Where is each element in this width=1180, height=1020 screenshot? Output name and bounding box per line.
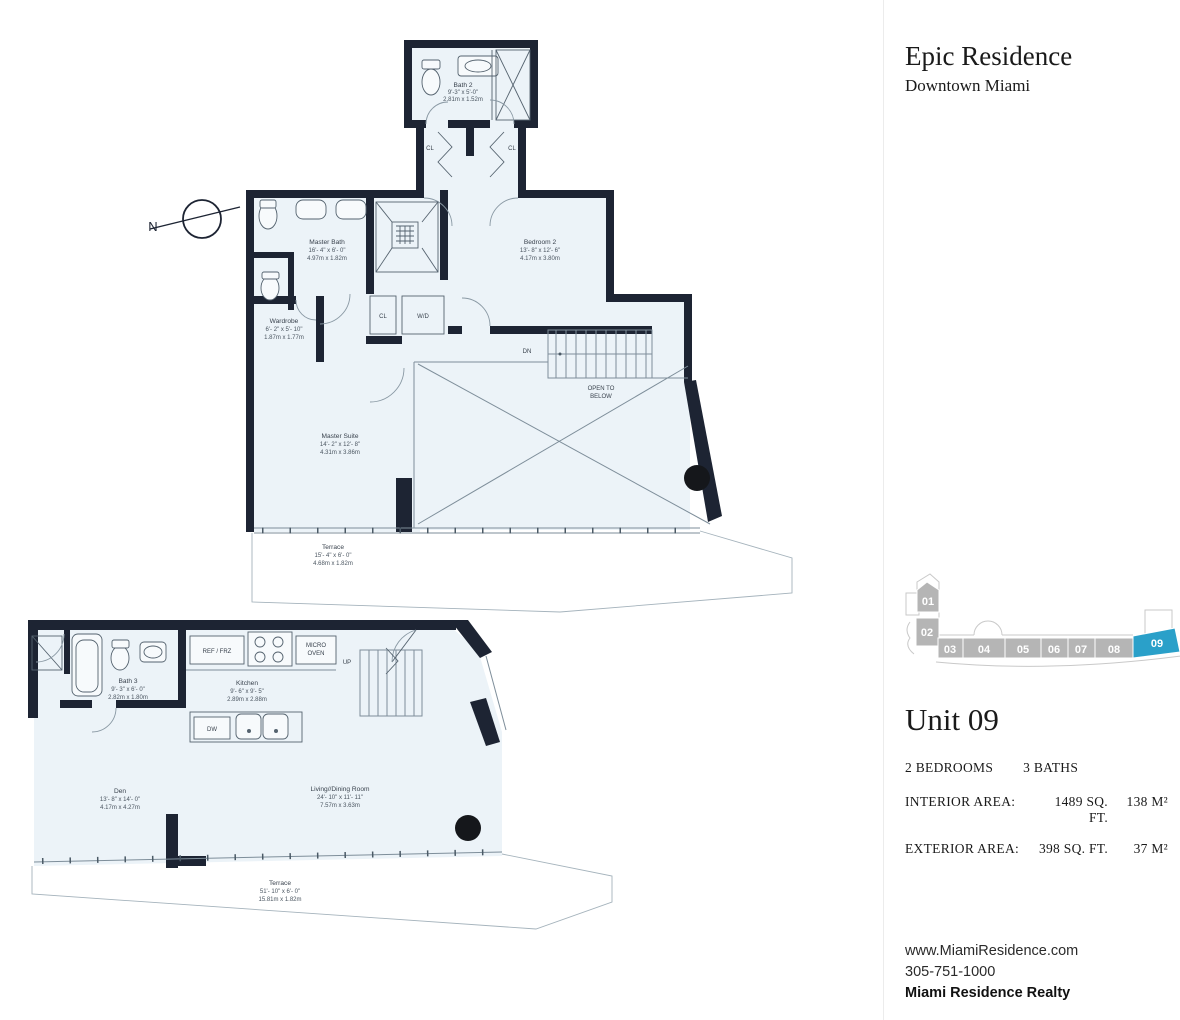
washer-dryer-label: W/D <box>417 314 429 320</box>
bedrooms-count: 2 BEDROOMS <box>905 760 993 775</box>
room-imperial: 9'- 3" x 6'- 0" <box>111 687 145 693</box>
footer-website: www.MiamiResidence.com <box>905 941 1078 962</box>
bed-bath-row: 2 BEDROOMS3 BATHS <box>905 760 1173 776</box>
open-to-below-label: BELOW <box>590 394 612 400</box>
room-metric: 2.82m x 1.80m <box>108 695 148 701</box>
lower-terrace-outline <box>32 854 612 929</box>
exterior-area-row: EXTERIOR AREA: 398 SQ. FT. 37 M² <box>905 841 1173 857</box>
key-unit-number: 06 <box>1048 644 1060 656</box>
room-imperial: 51'- 10" x 6'- 0" <box>260 889 300 895</box>
column <box>684 465 710 491</box>
microwave-label: MICRO <box>306 643 326 649</box>
room-imperial: 6'- 2" x 5'- 10" <box>266 327 303 333</box>
dishwasher-label: DW <box>207 727 217 733</box>
page-subtitle: Downtown Miami <box>905 76 1072 96</box>
key-unit-number: 08 <box>1108 644 1120 656</box>
key-unit-number: 09 <box>1151 638 1163 650</box>
room-name: Master Bath <box>309 239 345 246</box>
floor-plans-canvas: Bath 2 9'-3" x 5'-0" 2.81m x 1.52m Maste… <box>0 0 900 1020</box>
room-label-master-suite: Master Suite 14'- 2" x 12'- 8" 4.31m x 3… <box>320 433 360 456</box>
room-name: Terrace <box>269 880 291 887</box>
room-metric: 4.17m x 4.27m <box>100 805 140 811</box>
interior-area-row: INTERIOR AREA: 1489 SQ. FT. 138 M² <box>905 794 1173 826</box>
room-name: Bedroom 2 <box>524 239 557 246</box>
room-imperial: 9'-3" x 5'-0" <box>448 90 478 96</box>
open-to-below-label: OPEN TO <box>588 386 615 392</box>
room-name: Kitchen <box>236 680 258 687</box>
microwave-label: OVEN <box>307 651 324 657</box>
room-imperial: 24'- 10" x 11'- 11" <box>317 795 363 801</box>
room-metric: 7.57m x 3.63m <box>320 803 360 809</box>
key-unit-number: 05 <box>1017 644 1029 656</box>
key-unit-number: 01 <box>922 596 934 608</box>
stairs-dn-label: DN <box>523 349 532 355</box>
exterior-area-m2: 37 M² <box>1108 841 1168 857</box>
upper-floor-plan: Bath 2 9'-3" x 5'-0" 2.81m x 1.52m Maste… <box>246 40 792 612</box>
key-plan-canvas: 01 02 03 04 05 06 07 08 09 <box>900 572 1180 672</box>
room-label-bedroom2: Bedroom 2 13'- 8" x 12'- 6" 4.17m x 3.80… <box>520 239 560 262</box>
room-label-wardrobe: Wardrobe 6'- 2" x 5'- 10" 1.87m x 1.77m <box>264 318 304 341</box>
room-imperial: 16'- 4" x 6'- 0" <box>309 248 346 254</box>
key-unit-number: 04 <box>978 644 991 656</box>
lower-floor-plan: Bath 3 9'- 3" x 6'- 0" 2.82m x 1.80m Kit… <box>28 620 612 929</box>
exterior-area-label: EXTERIOR AREA: <box>905 841 1033 857</box>
closet-label: CL <box>508 146 516 152</box>
fridge-label: REF / FRZ <box>203 649 232 655</box>
room-name: Terrace <box>322 544 344 551</box>
room-imperial: 13'- 8" x 12'- 6" <box>520 248 560 254</box>
page-title: Epic Residence <box>905 42 1072 72</box>
room-imperial: 14'- 2" x 12'- 8" <box>320 442 360 448</box>
footer-phone: 305-751-1000 <box>905 962 1078 983</box>
room-label-master-bath: Master Bath 16'- 4" x 6'- 0" 4.97m x 1.8… <box>307 239 347 262</box>
key-unit-number: 07 <box>1075 644 1087 656</box>
unit-title: Unit 09 <box>905 702 1173 738</box>
room-name: Living//Dining Room <box>310 786 370 793</box>
room-metric: 1.87m x 1.77m <box>264 335 304 341</box>
unit-info: Unit 09 2 BEDROOMS3 BATHS INTERIOR AREA:… <box>905 702 1173 872</box>
room-name: Bath 3 <box>118 678 137 685</box>
interior-area-label: INTERIOR AREA: <box>905 794 1033 826</box>
room-metric: 2.89m x 2.88m <box>227 697 267 703</box>
stairs-up-label: UP <box>343 660 351 666</box>
sidebar: Epic Residence Downtown Miami <box>905 0 1173 1020</box>
room-imperial: 15'- 4" x 6'- 0" <box>315 553 352 559</box>
footer-company: Miami Residence Realty <box>905 983 1078 1004</box>
key-unit-number: 03 <box>944 644 956 656</box>
room-metric: 4.68m x 1.82m <box>313 561 353 567</box>
room-name: Den <box>114 788 126 795</box>
sidebar-divider <box>883 0 884 1020</box>
room-metric: 4.31m x 3.86m <box>320 450 360 456</box>
interior-area-sqft: 1489 SQ. FT. <box>1033 794 1108 826</box>
key-unit-number: 02 <box>921 627 933 639</box>
exterior-area-sqft: 398 SQ. FT. <box>1033 841 1108 857</box>
room-imperial: 9'- 6" x 9'- 5" <box>230 689 264 695</box>
north-arrow: N <box>148 200 240 238</box>
room-metric: 2.81m x 1.52m <box>443 97 483 103</box>
room-name: Wardrobe <box>270 318 299 325</box>
room-label-lower-terrace: Terrace 51'- 10" x 6'- 0" 15.81m x 1.82m <box>258 880 301 903</box>
brand-block: Epic Residence Downtown Miami <box>905 42 1072 96</box>
key-plan-units: 01 02 03 04 05 06 07 08 09 <box>916 582 1180 658</box>
room-metric: 15.81m x 1.82m <box>258 897 301 903</box>
column <box>455 815 481 841</box>
room-label-upper-terrace: Terrace 15'- 4" x 6'- 0" 4.68m x 1.82m <box>313 544 353 567</box>
baths-count: 3 BATHS <box>1023 760 1078 775</box>
closet-label: CL <box>426 146 434 152</box>
footer: www.MiamiResidence.com 305-751-1000 Miam… <box>905 941 1078 1004</box>
closet-label: CL <box>379 314 387 320</box>
interior-area-m2: 138 M² <box>1108 794 1168 826</box>
room-imperial: 13'- 8" x 14'- 0" <box>100 797 140 803</box>
room-metric: 4.97m x 1.82m <box>307 256 347 262</box>
room-name: Bath 2 <box>453 82 472 89</box>
room-metric: 4.17m x 3.80m <box>520 256 560 262</box>
north-label: N <box>148 219 157 234</box>
room-name: Master Suite <box>321 433 358 440</box>
building-key-plan: 01 02 03 04 05 06 07 08 09 <box>900 572 1180 672</box>
floorplan-page: Bath 2 9'-3" x 5'-0" 2.81m x 1.52m Maste… <box>0 0 1180 1020</box>
